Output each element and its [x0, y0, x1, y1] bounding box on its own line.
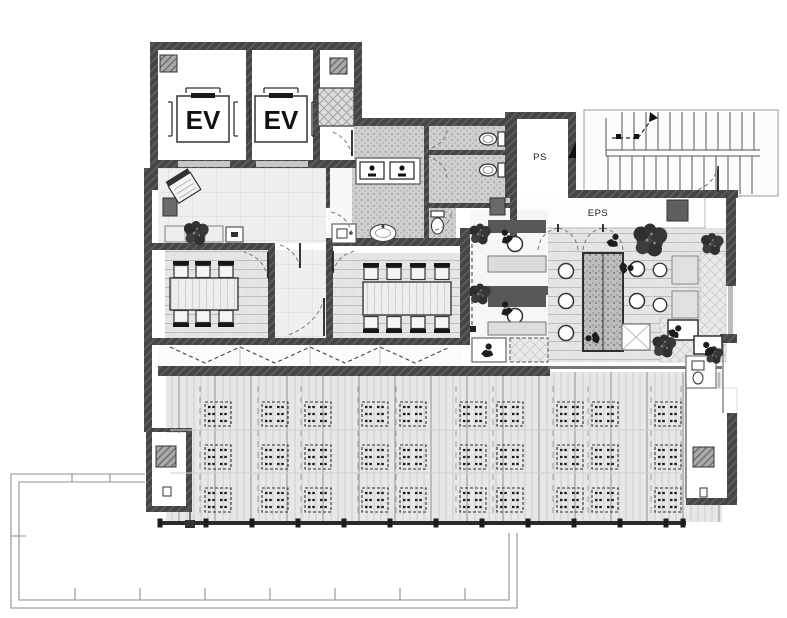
wall-ev-divider — [246, 50, 252, 160]
basin-icon — [370, 225, 396, 242]
window-wall-bottom — [158, 521, 686, 525]
wall-restroom-top — [352, 118, 512, 126]
wall-mr1-right — [268, 243, 275, 338]
mullion-tick — [526, 519, 531, 528]
alcove-basin — [693, 372, 703, 384]
wall-mr1-top — [150, 243, 275, 250]
stool — [653, 263, 667, 277]
booth2-desk — [488, 322, 546, 335]
wall-rooms-bottom — [150, 338, 470, 345]
wall-ev-top — [150, 42, 362, 50]
wall-bl-room-left — [146, 428, 152, 512]
alcove-fixture — [692, 361, 704, 370]
stool — [559, 264, 574, 279]
chair — [386, 263, 402, 280]
mullion-tick — [434, 519, 439, 528]
cafe-table — [622, 324, 650, 350]
column-hatched — [156, 446, 176, 467]
stool — [630, 294, 645, 309]
elevator-2: EV — [246, 88, 316, 142]
wall-stair-bottom — [576, 190, 738, 198]
chair — [173, 261, 189, 278]
wall-stall-divider-1 — [424, 150, 512, 155]
side-table — [672, 256, 698, 284]
wall-step-right-of-ev — [354, 42, 362, 126]
chair — [410, 263, 426, 280]
conference-table-2 — [363, 282, 451, 315]
mullion-tick — [618, 519, 623, 528]
side-table — [672, 291, 698, 318]
wall-office-top — [158, 366, 550, 376]
mullion-tick — [204, 519, 209, 528]
mullion-tick — [388, 519, 393, 528]
booth2-back-panel — [488, 295, 546, 307]
stairwell-floor — [584, 110, 778, 196]
mullion-tick — [681, 519, 686, 528]
column-solid — [490, 198, 505, 215]
meeting-room-1 — [170, 261, 238, 327]
booth1-desk — [488, 256, 546, 272]
urinal-icon — [390, 162, 414, 179]
ev2-door — [269, 93, 293, 98]
cabinet-handle — [231, 232, 238, 237]
stool — [559, 326, 574, 341]
urinal-icon — [360, 162, 384, 179]
booth-post — [470, 326, 476, 332]
booth-small-room — [472, 338, 506, 362]
stool — [559, 294, 574, 309]
conference-table-1 — [170, 278, 238, 310]
chair — [218, 311, 234, 328]
chair — [363, 263, 379, 280]
stair-arrow-node — [634, 134, 639, 139]
wall-stall-left — [424, 126, 429, 243]
equipment-box — [163, 487, 171, 496]
column-solid — [667, 200, 688, 221]
x-shaft — [318, 88, 354, 126]
wall-bl-room-bottom — [146, 506, 192, 512]
ev1-door-sill — [178, 161, 230, 167]
lounge-area — [559, 253, 723, 354]
mullion-tick — [572, 519, 577, 528]
column-solid — [163, 198, 177, 216]
stool — [653, 298, 667, 312]
column-hatched — [693, 447, 714, 467]
mullion-tick — [296, 519, 301, 528]
chair — [173, 311, 189, 328]
elevator-1: EV — [168, 88, 238, 142]
booth-storage-closet — [510, 338, 548, 362]
mullion-tick — [250, 519, 255, 528]
wall-balcony-bottom — [686, 498, 737, 505]
sink-icon — [332, 224, 356, 243]
ev2-label: EV — [264, 105, 299, 135]
floor-plan-canvas: EV EV — [0, 0, 787, 618]
column-hatched — [330, 58, 347, 74]
stair-arrow-node — [616, 134, 621, 139]
mullion-tick — [342, 519, 347, 528]
open-office-floor — [166, 372, 722, 522]
wall-restroom-corridor — [326, 160, 330, 208]
toilet-icon — [480, 163, 506, 177]
wall-right-upper — [726, 198, 736, 286]
chair — [410, 317, 426, 334]
mullion-tick — [664, 519, 669, 528]
mullion-tick — [158, 519, 163, 528]
floor-plan-drawing: EV EV — [0, 0, 787, 618]
ev1-label: EV — [186, 105, 221, 135]
wall-mr2-right — [460, 228, 470, 338]
ev2-door-sill — [256, 161, 308, 167]
chair — [218, 261, 234, 278]
ps-label: PS — [533, 152, 547, 163]
chair — [195, 311, 211, 328]
wall-ps-top — [505, 112, 576, 119]
chair — [195, 261, 211, 278]
eps-label: EPS — [588, 208, 609, 219]
booth1-back-panel — [488, 220, 546, 233]
window-right-wall — [728, 286, 733, 334]
column-hatched — [160, 55, 177, 72]
wall-right-lower — [727, 413, 737, 502]
mullion-tick — [480, 519, 485, 528]
chair — [434, 317, 450, 334]
toilet-icon — [480, 132, 506, 146]
toilet-icon — [431, 211, 444, 234]
chair — [363, 317, 379, 334]
chair — [386, 317, 402, 334]
wall-mr2-left — [326, 246, 333, 338]
chair — [434, 263, 450, 280]
wall-left-lower — [144, 186, 152, 432]
connector-post — [185, 520, 195, 528]
wall-bl-room-right — [186, 428, 192, 512]
ev1-door — [191, 93, 215, 98]
equipment-box — [700, 488, 707, 497]
wall-left-upper — [150, 42, 158, 170]
